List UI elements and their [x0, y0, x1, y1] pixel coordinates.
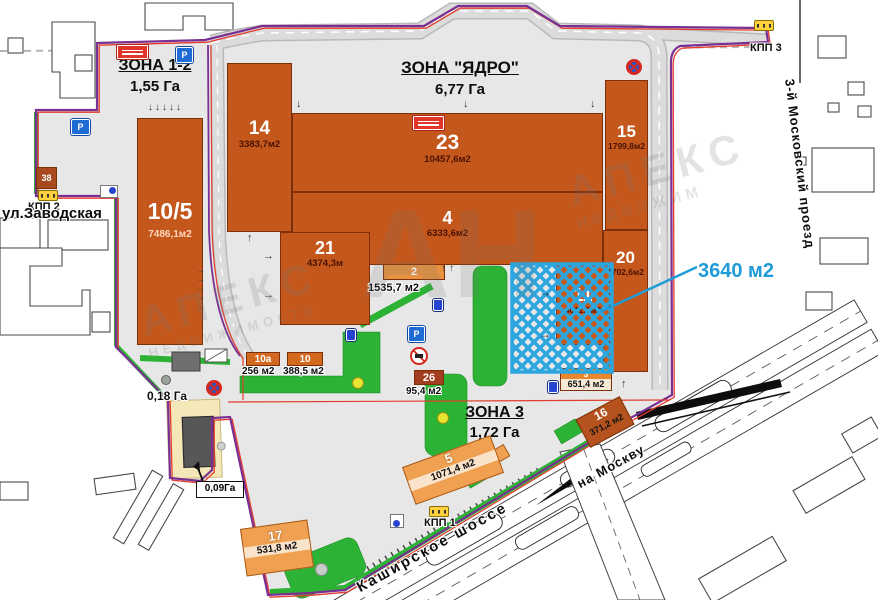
road-chevrons: →→→→→ — [197, 266, 205, 311]
entrance-arrow: → — [539, 328, 551, 340]
hydrant-icon — [548, 381, 558, 393]
building-area: 10457,6м2 — [424, 154, 471, 165]
building-area: 651,4 м2 — [561, 379, 611, 390]
zone-core-label: ЗОНА "ЯДРО" 6,77 Га — [375, 58, 545, 98]
parking-sign-icon: P — [408, 326, 425, 342]
gate-icon-kpp3 — [754, 20, 774, 31]
yellow-marker-dot — [352, 377, 364, 389]
building-number: 14 — [249, 119, 270, 139]
building-number: 21 — [315, 239, 335, 258]
building-number: 38 — [41, 173, 51, 183]
building-10-area: 388,5 м2 — [283, 366, 324, 377]
entrance-arrow: → — [263, 251, 274, 262]
entrance-arrow: → — [539, 286, 551, 298]
zone-area: 6,77 Га — [375, 81, 545, 98]
building-number: 2 — [411, 266, 417, 278]
building-2: 2 — [383, 264, 445, 280]
hydrant-icon — [346, 329, 356, 341]
street-zavodskaya: ул.Заводская — [2, 205, 102, 222]
zone-3-label: ЗОНА 3 1,72 Га — [437, 404, 552, 441]
parcel-018-label: 0,18 Га — [147, 389, 187, 403]
building-area: 7486,1м2 — [148, 229, 192, 241]
gate-icon-kpp1 — [429, 506, 449, 517]
building-38: 38 — [36, 167, 57, 189]
building-number: 23 — [436, 132, 459, 154]
no-stopping-sign-icon — [626, 59, 642, 75]
building-17: 17 531,8 м2 — [240, 520, 314, 577]
building-11: 11 4011,9м2 — [556, 265, 610, 345]
zone-name: ЗОНА "ЯДРО" — [375, 58, 545, 78]
parking-sign-icon: P — [176, 47, 193, 63]
building-26: 26 — [414, 370, 444, 385]
zone-name: ЗОНА 3 — [437, 404, 552, 422]
entrance-arrow: ↑ — [621, 379, 627, 390]
building-26-area: 95,4 м2 — [406, 386, 441, 397]
container — [172, 352, 200, 371]
hydrant-icon — [433, 299, 443, 311]
highlight-area-label: 3640 м2 — [698, 260, 774, 283]
building-10: 10 — [287, 352, 323, 366]
building-number: 10 — [299, 354, 310, 365]
gate-icon-kpp2 — [38, 190, 58, 201]
kpp3-label: КПП 3 — [750, 42, 782, 54]
entrance-arrows: ↑↑ — [441, 264, 457, 274]
building-number: 10/5 — [148, 199, 193, 223]
restricted-area-sign-icon — [117, 45, 148, 59]
container-open — [205, 349, 227, 362]
parking-truck-sign-icon: P — [71, 119, 90, 135]
building-area: 6333,6м2 — [427, 228, 468, 239]
building-area: 1799,8м2 — [608, 141, 645, 151]
building-area: 3383,7м2 — [239, 139, 280, 150]
building-14: 14 3383,7м2 — [227, 63, 292, 232]
building-area: 2702,6м2 — [607, 267, 644, 277]
entrance-arrow: ↓ — [590, 99, 596, 110]
building-number: 10а — [255, 354, 272, 365]
restricted-area-sign-icon — [413, 116, 444, 130]
entrance-arrow: ↑ — [247, 233, 253, 244]
building-area: 4374,3м — [307, 258, 343, 269]
utility-dot-icon — [109, 187, 116, 194]
entrance-arrows: ↓↓↓↓↓ — [148, 103, 183, 113]
building-15: 15 1799,8м2 — [605, 80, 648, 230]
utility-dot-icon — [393, 520, 400, 527]
building-10a: 10а — [246, 352, 280, 366]
building-number: 15 — [617, 123, 636, 141]
zone-area: 1,55 Га — [90, 78, 220, 95]
parcel-009-label: 0,09Га — [196, 481, 244, 498]
no-trucks-sign-icon — [410, 347, 428, 365]
ground-dot — [162, 376, 171, 385]
site-plan-map: 10/5 7486,1м2 14 3383,7м2 23 10457,6м2 1… — [0, 0, 878, 600]
entrance-arrow: ↓ — [463, 99, 469, 110]
zone-name: ЗОНА 1-2 — [90, 57, 220, 75]
building-number: 26 — [423, 372, 435, 384]
building-number: 11 — [573, 286, 592, 305]
building-23: 23 10457,6м2 — [292, 113, 603, 192]
zone-1-2-label: ЗОНА 1-2 1,55 Га — [90, 57, 220, 95]
building-number: 3 — [561, 369, 611, 379]
gray-marker-dot — [315, 563, 328, 576]
building-number: 20 — [616, 249, 635, 267]
entrance-arrow: → — [263, 290, 274, 301]
building-21: 21 4374,3м — [280, 232, 370, 325]
building-10a-area: 256 м2 — [242, 366, 274, 377]
building-number: 4 — [442, 209, 452, 228]
building-area: 4011,9м2 — [565, 305, 602, 315]
building-2-area: 1535,7 м2 — [368, 282, 419, 294]
zone-area: 1,72 Га — [437, 424, 552, 441]
no-stopping-sign-icon — [206, 380, 222, 396]
entrance-arrow: ↓ — [296, 99, 302, 110]
building-3: 3 651,4 м2 — [560, 368, 612, 391]
building-10-5: 10/5 7486,1м2 — [137, 118, 203, 345]
